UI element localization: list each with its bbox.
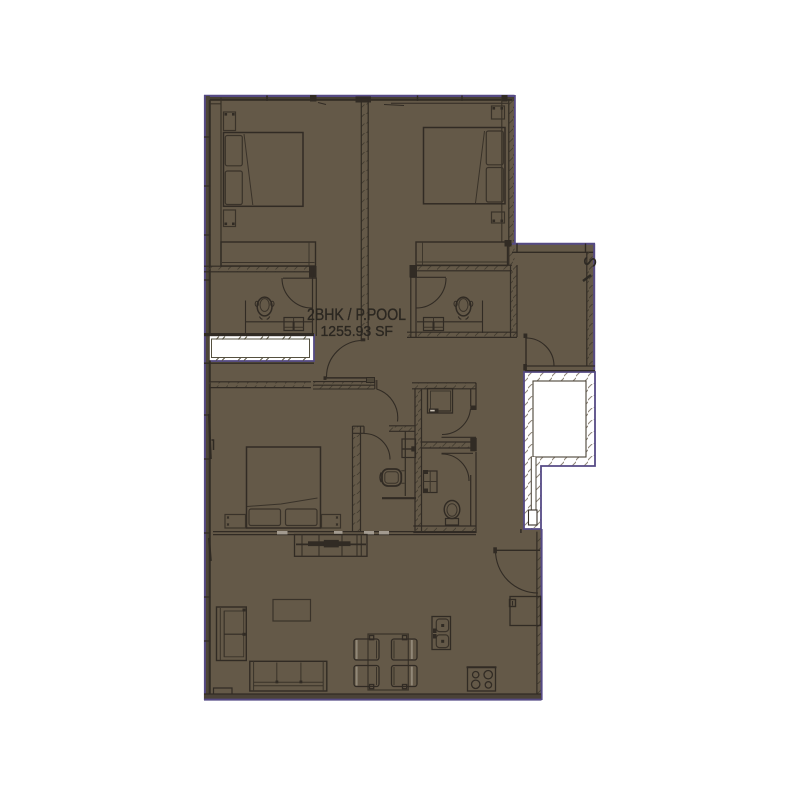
- svg-text:1255.93 SF: 1255.93 SF: [321, 324, 394, 340]
- svg-text:2BHK / P.POOL: 2BHK / P.POOL: [307, 306, 406, 324]
